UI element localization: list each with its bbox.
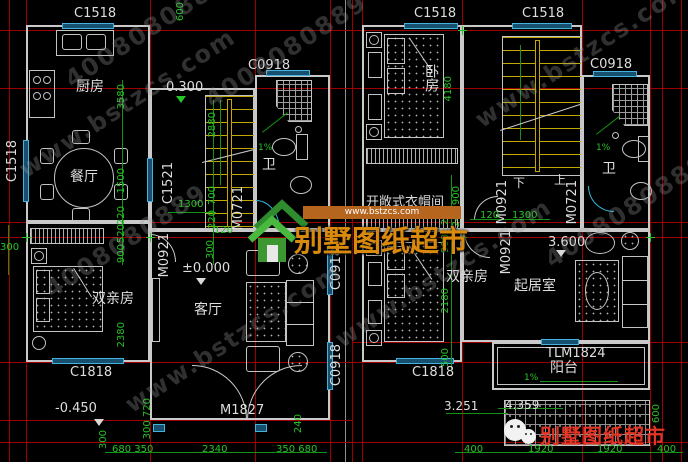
washbasin [290,176,312,194]
axis-line [650,0,651,462]
room-label-living: 客厅 [194,303,222,317]
floor-drain [612,132,619,139]
level-mark [196,278,206,285]
window-label: C1818 [70,366,112,379]
balcony-drain-arrow [540,381,618,382]
dining-chair [114,148,128,164]
stove-burner [43,76,51,84]
room-label-dining: 餐厅 [70,170,98,184]
plant [288,352,308,372]
door-label: M0921 [158,233,171,277]
window-c1818-left [52,358,124,364]
pillow [387,68,405,94]
sofa-seat-divider [622,304,648,305]
level-text: 3.251 [444,400,478,412]
window-label: C1818 [412,366,454,379]
tv-cabinet [152,278,160,342]
pillow [387,38,405,64]
dim-text: 680 350 [112,445,153,455]
brand-name-footer: 别墅图纸超市 [540,420,666,449]
dim-text: 240 [294,414,304,433]
sofa [622,256,648,328]
dim-text: 2180 [441,288,451,313]
door-tlm1824 [541,339,579,345]
window-c1518-top-left-plan [62,23,114,29]
axis-cross [646,233,655,242]
window-c1518-b-right-plan [512,23,572,29]
door-label: M0721 [566,180,579,224]
dim-text: 1500 [117,168,127,193]
axis-line [681,0,682,462]
floorplan-canvas: C1518 600 C1518 300 厨房 0.300 3580 餐厅 150… [0,0,688,462]
toilet-tank [296,134,308,160]
dim-text: 220 [117,206,127,225]
sofa-seat-divider [286,324,314,325]
dim-text: 120 [480,211,499,221]
door-label: M1827 [220,404,264,417]
slope-text: 1% [258,144,272,153]
floor-drain [295,126,302,133]
level-text: ±0.000 [182,262,230,275]
axis-line [662,0,663,462]
slope-text: 1% [596,144,610,153]
window-c1518-a-right-plan [404,23,458,29]
window-label: C1518 [74,7,116,20]
entry-sidelight-b [255,424,267,432]
window-label: C0918 [330,344,343,386]
level-mark [176,96,186,103]
entry-sidelight-a [153,424,165,432]
pillow [36,298,50,322]
room-label-bedroom: 卧房 [424,64,438,92]
dim-text: 400 [464,445,483,455]
nightstand [368,94,382,120]
level-leader [446,413,508,414]
nightstand [368,262,382,286]
dim-text: 4180 [444,76,454,101]
rug-inner-oval [585,272,609,310]
stool [32,336,46,350]
dim-text: 2880 [208,112,218,137]
room-label-bath: 卫 [602,162,616,176]
wechat-icon-eye [525,433,527,435]
window-label: C1518 [414,7,456,20]
fixture-fan-icon [369,35,379,45]
room-label-sitting: 起居室 [514,279,556,293]
brand-name-watermark: 别墅图纸超市 [294,218,468,260]
dim-text: 350 680 [276,445,317,455]
stair-arrow-left [220,100,221,185]
dim-text: 2380 [117,322,127,347]
wechat-icon-eye [517,425,520,428]
dim-text: 300 [99,430,109,449]
stove-burner [33,76,41,84]
dim-text: 300 [206,240,216,259]
stove-burner [43,92,51,100]
stair-rail-right [535,40,540,172]
fixture-fan-icon [369,127,379,137]
fixture-fan-icon [34,251,44,261]
window-c1521 [147,158,153,202]
room-label-bath: 卫 [262,158,276,172]
level-mark [94,419,104,426]
door-label: TLM1824 [546,347,605,360]
wechat-icon-eye [510,425,513,428]
toilet-tank [638,136,649,162]
door-label: M0721 [232,186,245,230]
dining-chair [72,208,90,222]
room-label-balcony: 阳台 [550,361,578,375]
wechat-icon-small-bubble [521,429,536,444]
axis-cross [458,26,467,35]
kitchen-sink-bowl [62,34,82,50]
plant [621,232,639,250]
closet-wardrobe-strip [366,148,458,164]
axis-line [9,0,10,462]
stair-down-label: 下 [513,177,525,189]
dim-text: 2340 [202,445,227,455]
armchair [246,346,280,372]
sofa-seat-divider [622,280,648,281]
room-label-parents: 双亲房 [92,292,134,306]
level-text: -0.450 [55,402,97,415]
toilet-bowl [272,138,296,156]
dim-line [455,452,683,453]
wardrobe [30,228,104,244]
nightstand [368,52,382,78]
axis-cross [22,233,31,242]
stove-burner [33,92,41,100]
window-label: C1518 [522,7,564,20]
level-text: 4.359 [505,399,539,411]
wechat-icon-eye [530,433,532,435]
dining-chair [40,184,54,200]
slope-text: 1% [524,374,538,383]
dim-text: 300 [0,243,19,253]
